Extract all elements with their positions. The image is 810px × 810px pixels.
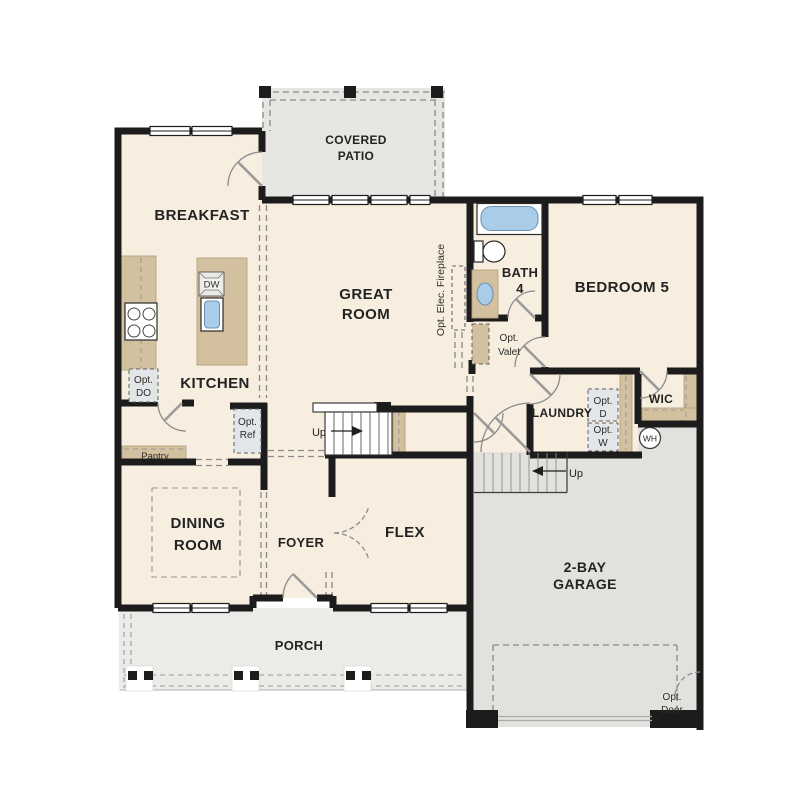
- opt-washer-label: Opt.: [594, 425, 613, 436]
- room-label-bath4: 4: [516, 281, 524, 296]
- porch-column-icon: [344, 666, 371, 691]
- opt-door-label: Door: [661, 705, 683, 716]
- room-label-kitchen: KITCHEN: [180, 375, 249, 392]
- porch-column-icon: [126, 666, 153, 691]
- kitchen-sink-icon: [201, 298, 223, 331]
- stairs-up-label: Up: [312, 427, 326, 439]
- window-icon: [371, 196, 407, 205]
- room-label-bath4: BATH: [502, 265, 538, 280]
- stairs-up-label: Up: [569, 468, 583, 480]
- dishwasher-icon: DW: [199, 272, 224, 296]
- room-label-great-room: GREAT: [339, 286, 392, 303]
- opt-elec-fireplace-label: Opt. Elec. Fireplace: [435, 244, 447, 336]
- water-heater-label: WH: [643, 434, 657, 444]
- bath-vanity-sink-icon: [472, 270, 498, 318]
- window-icon: [332, 196, 368, 205]
- window-icon: [410, 604, 447, 613]
- opt-do-label: DO: [136, 388, 151, 399]
- opt-ref-label: Opt.: [238, 417, 257, 428]
- room-label-flex: FLEX: [385, 524, 425, 541]
- opt-dryer-label: D: [599, 409, 606, 420]
- window-icon: [293, 196, 329, 205]
- room-label-porch: PORCH: [275, 638, 323, 653]
- opt-washer-label: W: [598, 438, 608, 449]
- porch-column-icon: [232, 666, 259, 691]
- cooktop-icon: [125, 303, 157, 340]
- opt-ref-label: Ref: [240, 430, 256, 441]
- room-label-bedroom5: BEDROOM 5: [575, 279, 669, 296]
- room-label-covered-patio: COVERED: [325, 133, 386, 147]
- room-label-great-room: ROOM: [342, 306, 390, 323]
- room-label-wic: WIC: [649, 392, 673, 406]
- room-label-dining: ROOM: [174, 537, 222, 554]
- opt-valet-cabinet: [472, 324, 489, 364]
- room-label-garage: 2-BAY: [564, 559, 607, 575]
- room-label-pantry: Pantry: [141, 451, 169, 462]
- window-icon: [583, 196, 616, 205]
- opt-valet-label: Valet: [498, 347, 520, 358]
- room-label-foyer: FOYER: [278, 535, 325, 550]
- window-icon: [192, 604, 229, 613]
- floor-plan-drawing: DW WH COVERED PATIO BREAKFAST GREAT ROOM…: [0, 0, 810, 810]
- patio-post-icon: [259, 86, 271, 98]
- window-icon: [371, 604, 408, 613]
- dishwasher-label: DW: [204, 280, 220, 291]
- room-label-garage: GARAGE: [553, 576, 617, 592]
- window-icon: [619, 196, 652, 205]
- patio-post-icon: [344, 86, 356, 98]
- opt-do-label: Opt.: [134, 375, 153, 386]
- patio-post-icon: [431, 86, 443, 98]
- opt-dryer-label: Opt.: [594, 396, 613, 407]
- toilet-icon: [474, 241, 505, 262]
- window-icon: [153, 604, 190, 613]
- room-label-breakfast: BREAKFAST: [154, 207, 249, 224]
- floor-plan-page: DW WH COVERED PATIO BREAKFAST GREAT ROOM…: [0, 0, 810, 810]
- window-icon: [192, 127, 232, 136]
- bathtub-icon: [477, 204, 542, 235]
- garage-door-jamb: [466, 710, 498, 728]
- room-label-dining: DINING: [171, 515, 226, 532]
- room-label-laundry: LAUNDRY: [532, 406, 592, 420]
- opt-valet-label: Opt.: [500, 333, 519, 344]
- water-heater-icon: WH: [640, 428, 661, 449]
- window-icon: [410, 196, 430, 205]
- window-icon: [150, 127, 190, 136]
- room-label-covered-patio: PATIO: [338, 149, 374, 163]
- opt-door-label: Opt.: [663, 692, 682, 703]
